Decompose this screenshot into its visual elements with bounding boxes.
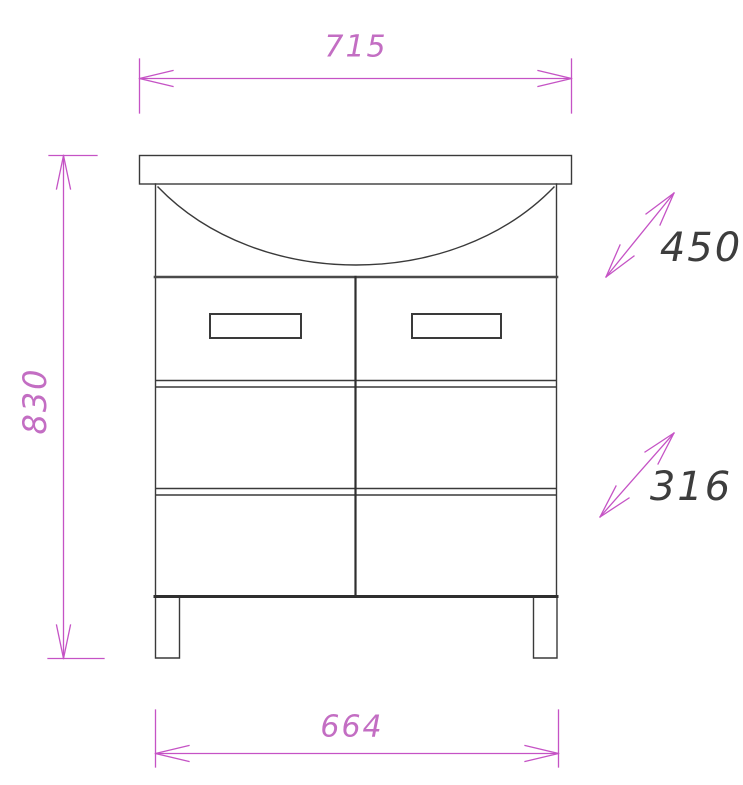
dimension-linework: [48, 59, 674, 767]
vanity-drawing: [0, 0, 743, 785]
dimension-label-top-width: 715: [324, 30, 387, 65]
dimension-label-right-lower: 316: [650, 464, 732, 510]
left-leg: [156, 597, 180, 658]
dimension-label-bottom-width: 664: [320, 710, 383, 745]
left-door-handle: [210, 314, 301, 338]
dimension-label-left-height: 830: [16, 367, 54, 434]
countertop-outline: [140, 156, 572, 185]
right-leg: [534, 597, 558, 658]
sink-bowl-curve: [158, 187, 554, 265]
technical-drawing-canvas: 715 830 450 316 664: [0, 0, 743, 785]
dimension-label-right-upper: 450: [660, 225, 742, 271]
right-door-handle: [412, 314, 501, 338]
